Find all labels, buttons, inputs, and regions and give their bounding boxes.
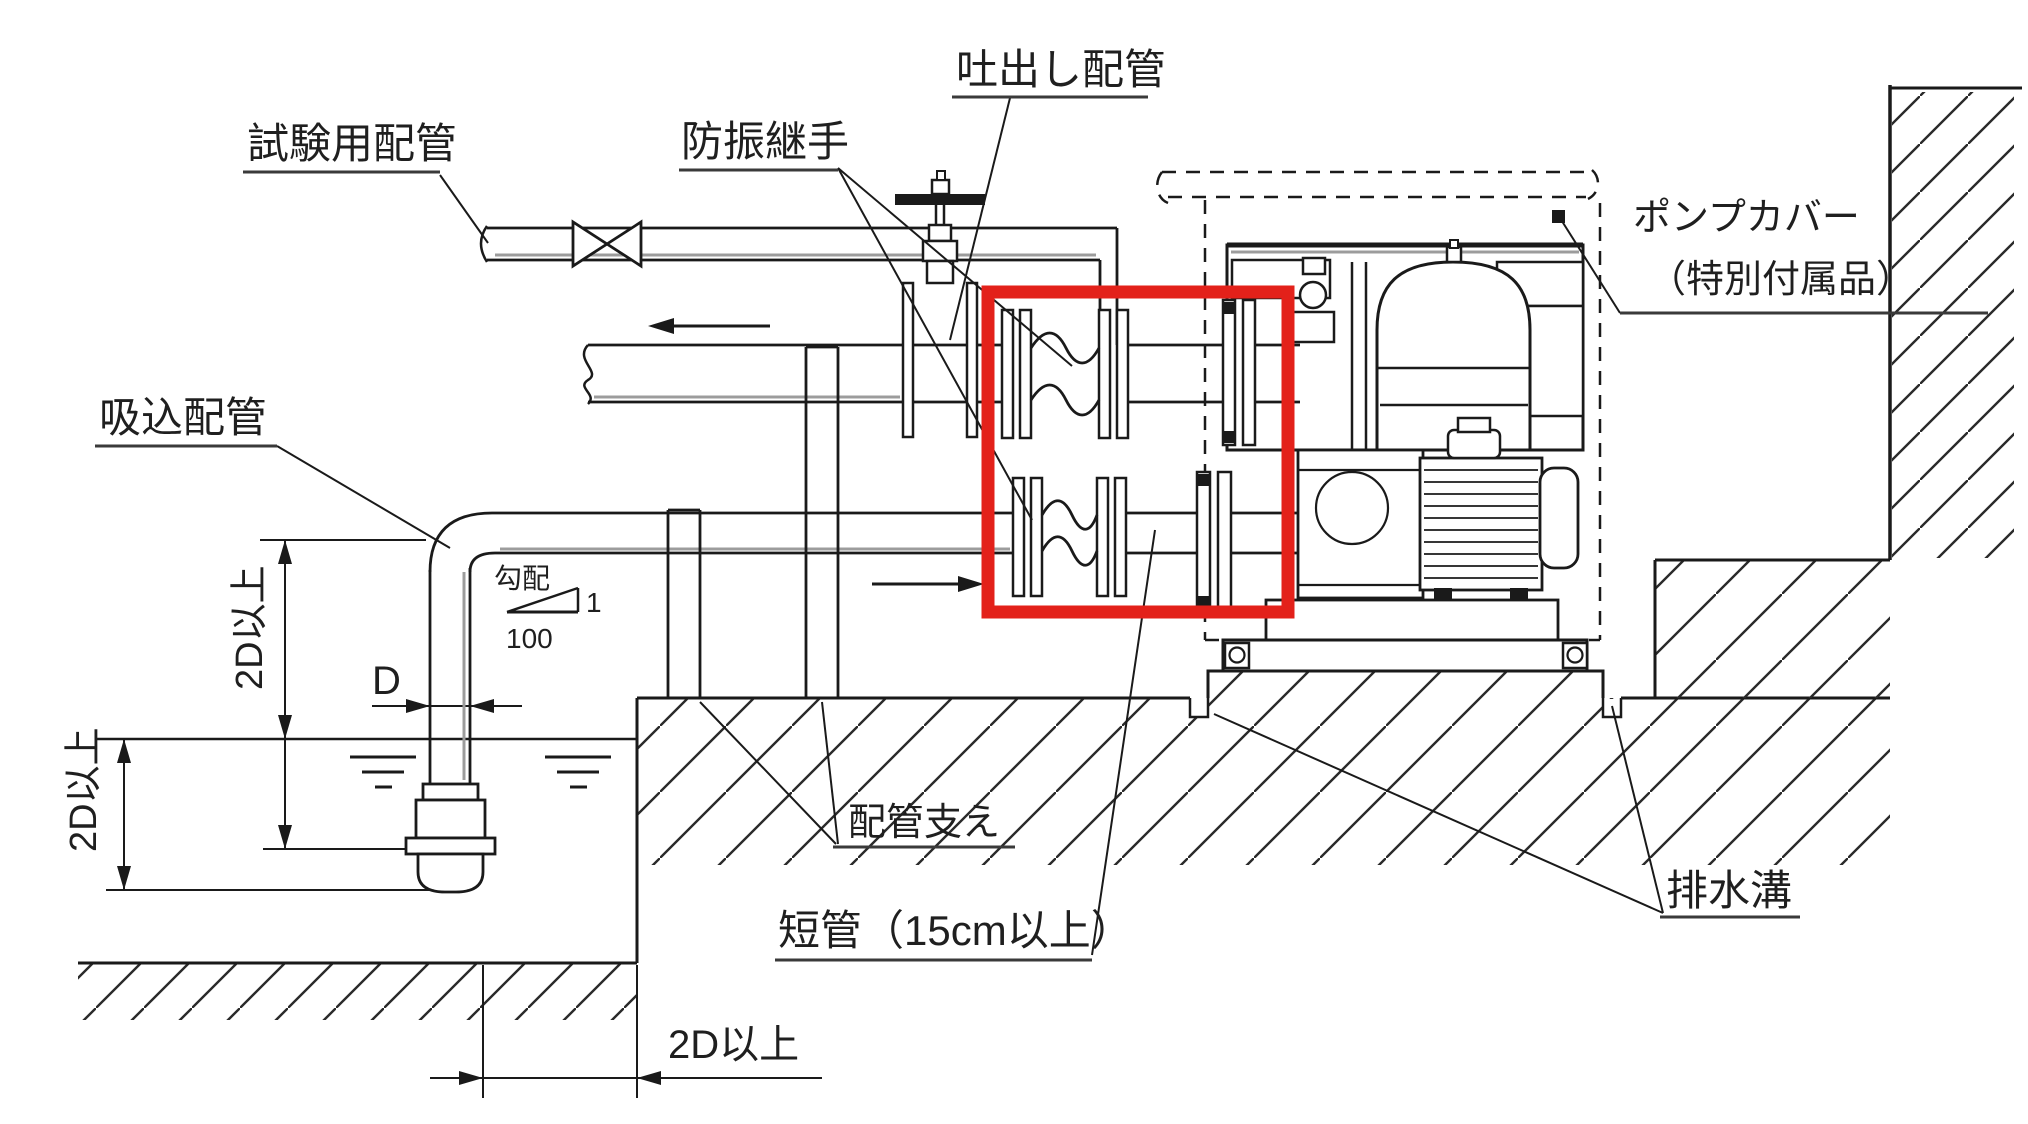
label-dim-d: D — [372, 659, 401, 703]
flow-arrow-left — [648, 318, 770, 334]
label-dim-2d-submergence: 2D以上 — [63, 727, 105, 852]
valve-handwheel — [895, 194, 985, 205]
bellows — [1031, 333, 1099, 363]
base-plate — [1223, 640, 1587, 671]
label-short-pipe: 短管（15cm以上） — [778, 907, 1133, 954]
slope-symbol: 勾配 1 100 — [494, 563, 602, 654]
pipe-break-symbol — [584, 345, 592, 404]
wall-bench — [1655, 560, 1890, 698]
labels: 試験用配管 防振継手 吐出し配管 ポンプカバー （特別付属品） 吸込配管 勾配 … — [63, 46, 1988, 1067]
discharge-flange — [1223, 300, 1255, 445]
drain-groove-left — [1190, 698, 1208, 717]
label-dim-2d-pipe: 2D以上 — [229, 565, 271, 690]
label-slope-numerator: 1 — [586, 587, 602, 618]
flow-arrow-right — [872, 576, 984, 592]
label-pipe-support: 配管支え — [848, 802, 1000, 844]
gate-valve — [895, 171, 985, 437]
label-pump-cover-line1: ポンプカバー — [1633, 197, 1860, 239]
water-surface — [95, 739, 637, 787]
pipe-support-left — [668, 510, 700, 698]
label-vibration-joint: 防振継手 — [681, 118, 849, 165]
machine-floor — [637, 671, 1890, 865]
label-slope: 勾配 — [494, 563, 550, 594]
pump-bed — [1266, 600, 1558, 640]
water-ripples-right — [545, 757, 611, 787]
dimension-submergence — [106, 739, 448, 890]
bellows — [1042, 501, 1097, 530]
wall — [1890, 85, 2022, 560]
label-suction-piping: 吸込配管 — [99, 394, 267, 441]
label-test-piping: 試験用配管 — [247, 120, 457, 167]
flexible-joint-lower — [1013, 478, 1126, 596]
leader-test-piping — [440, 175, 488, 243]
foot-valve — [406, 784, 495, 892]
label-drain-ditch: 排水溝 — [1666, 867, 1792, 914]
strainer-basket — [418, 854, 483, 892]
label-pump-cover-line2: （特別付属品） — [1648, 259, 1914, 301]
suction-flange — [1197, 472, 1231, 610]
label-discharge-piping: 吐出し配管 — [956, 46, 1166, 93]
water-ripples-left — [350, 757, 416, 787]
pit-floor — [78, 698, 637, 1020]
pressure-tank — [1377, 262, 1530, 450]
flexible-joint-upper — [1002, 310, 1128, 438]
label-dim-2d-pit: 2D以上 — [668, 1023, 799, 1067]
pipe-support-right — [806, 347, 838, 698]
label-slope-denominator: 100 — [506, 623, 553, 654]
leader-suction-piping — [277, 446, 450, 548]
leader-discharge-piping — [950, 98, 1010, 340]
pump-casing — [1298, 450, 1423, 598]
pump-installation-diagram: 試験用配管 防振継手 吐出し配管 ポンプカバー （特別付属品） 吸込配管 勾配 … — [0, 0, 2028, 1124]
